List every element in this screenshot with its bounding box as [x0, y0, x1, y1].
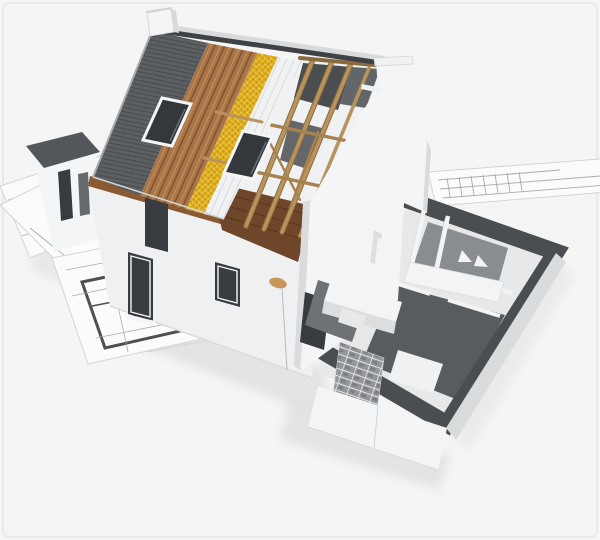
left-wing-window	[78, 172, 90, 216]
kitchen-tall-unit	[348, 224, 374, 262]
gable-chimney-cap	[374, 56, 413, 66]
house-cutaway-illustration	[0, 0, 600, 540]
front-window-2	[215, 262, 240, 307]
render-canvas	[0, 0, 600, 540]
window-opening	[128, 252, 153, 321]
chimney-front	[147, 9, 174, 36]
ridge-chimney	[146, 8, 179, 36]
